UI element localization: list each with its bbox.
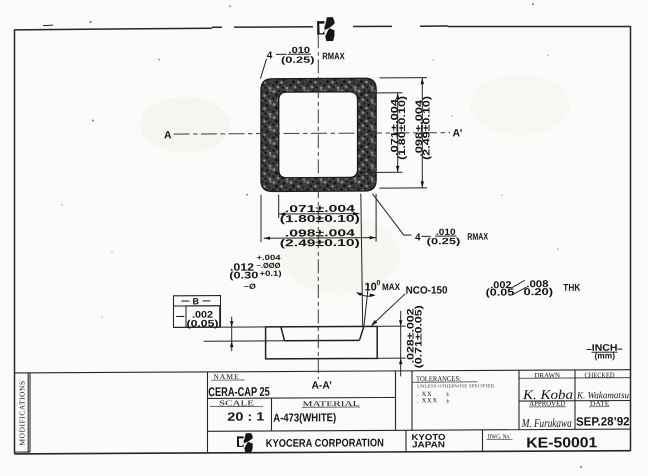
svg-text:(2.49±0.10): (2.49±0.10) [422, 96, 433, 160]
svg-text:NCO-150: NCO-150 [406, 284, 448, 296]
svg-text:SCALE: SCALE [219, 398, 255, 407]
svg-text:A-473(WHITE): A-473(WHITE) [273, 412, 336, 424]
svg-text:TOLERANCES:: TOLERANCES: [416, 374, 461, 383]
svg-text:A’: A’ [453, 127, 463, 139]
svg-text:RMAX: RMAX [467, 232, 488, 243]
svg-text:MODIFICATIONS: MODIFICATIONS [17, 380, 26, 445]
svg-text:A-A’: A-A’ [312, 380, 333, 392]
svg-text:+0.1): +0.1) [260, 269, 283, 278]
svg-text:KYOCERA CORPORATION: KYOCERA CORPORATION [266, 437, 384, 450]
svg-text:SEP.28’92: SEP.28’92 [576, 414, 630, 428]
svg-text:10: 10 [365, 281, 377, 293]
svg-text:B: B [193, 296, 200, 306]
svg-text:A: A [164, 129, 172, 141]
svg-text:(2.49±0.10): (2.49±0.10) [280, 238, 360, 249]
svg-text:(0.30: (0.30 [229, 270, 258, 281]
svg-text:(0.25): (0.25) [281, 55, 315, 65]
svg-text:±: ± [446, 397, 450, 404]
svg-text:CERA-CAP 25: CERA-CAP 25 [208, 385, 270, 399]
svg-text:0: 0 [377, 280, 381, 287]
svg-text:DATE: DATE [590, 400, 610, 408]
svg-text:DWG. No.: DWG. No. [488, 433, 511, 440]
svg-text:MATERIAL: MATERIAL [303, 399, 361, 408]
svg-text:(1.80±0.10): (1.80±0.10) [397, 96, 408, 160]
svg-text:UNLESS OTHERWISE SPECIFIED: UNLESS OTHERWISE SPECIFIED [417, 383, 494, 388]
svg-text:MAX: MAX [382, 282, 401, 293]
svg-text:.010: .010 [289, 45, 311, 55]
svg-text:JAPAN: JAPAN [412, 439, 445, 449]
svg-text:(0.05): (0.05) [187, 318, 219, 329]
svg-text:4: 4 [415, 232, 421, 243]
svg-text:RMAX: RMAX [322, 51, 345, 62]
svg-text:(0.25): (0.25) [427, 236, 461, 246]
svg-text:(0.71±0.05): (0.71±0.05) [414, 305, 425, 368]
svg-text:APPROVED: APPROVED [529, 400, 565, 408]
svg-text:DRAWN: DRAWN [535, 371, 561, 379]
svg-text:THK: THK [563, 283, 581, 294]
svg-text:−Ø: −Ø [244, 282, 256, 291]
svg-text:KE-50001: KE-50001 [526, 435, 597, 451]
svg-text:. XXX: . XXX [417, 397, 438, 404]
svg-text:M. Furukawa: M. Furukawa [521, 416, 572, 430]
svg-text:NAME: NAME [214, 372, 240, 381]
svg-text:(0.05: (0.05 [486, 288, 515, 299]
svg-text:4: 4 [267, 50, 273, 61]
svg-text:(1.80±0.10): (1.80±0.10) [280, 214, 360, 225]
svg-text:0.20): 0.20) [524, 287, 554, 298]
svg-text:CHECKED: CHECKED [585, 371, 615, 379]
svg-text:20 : 1: 20 : 1 [227, 410, 264, 424]
